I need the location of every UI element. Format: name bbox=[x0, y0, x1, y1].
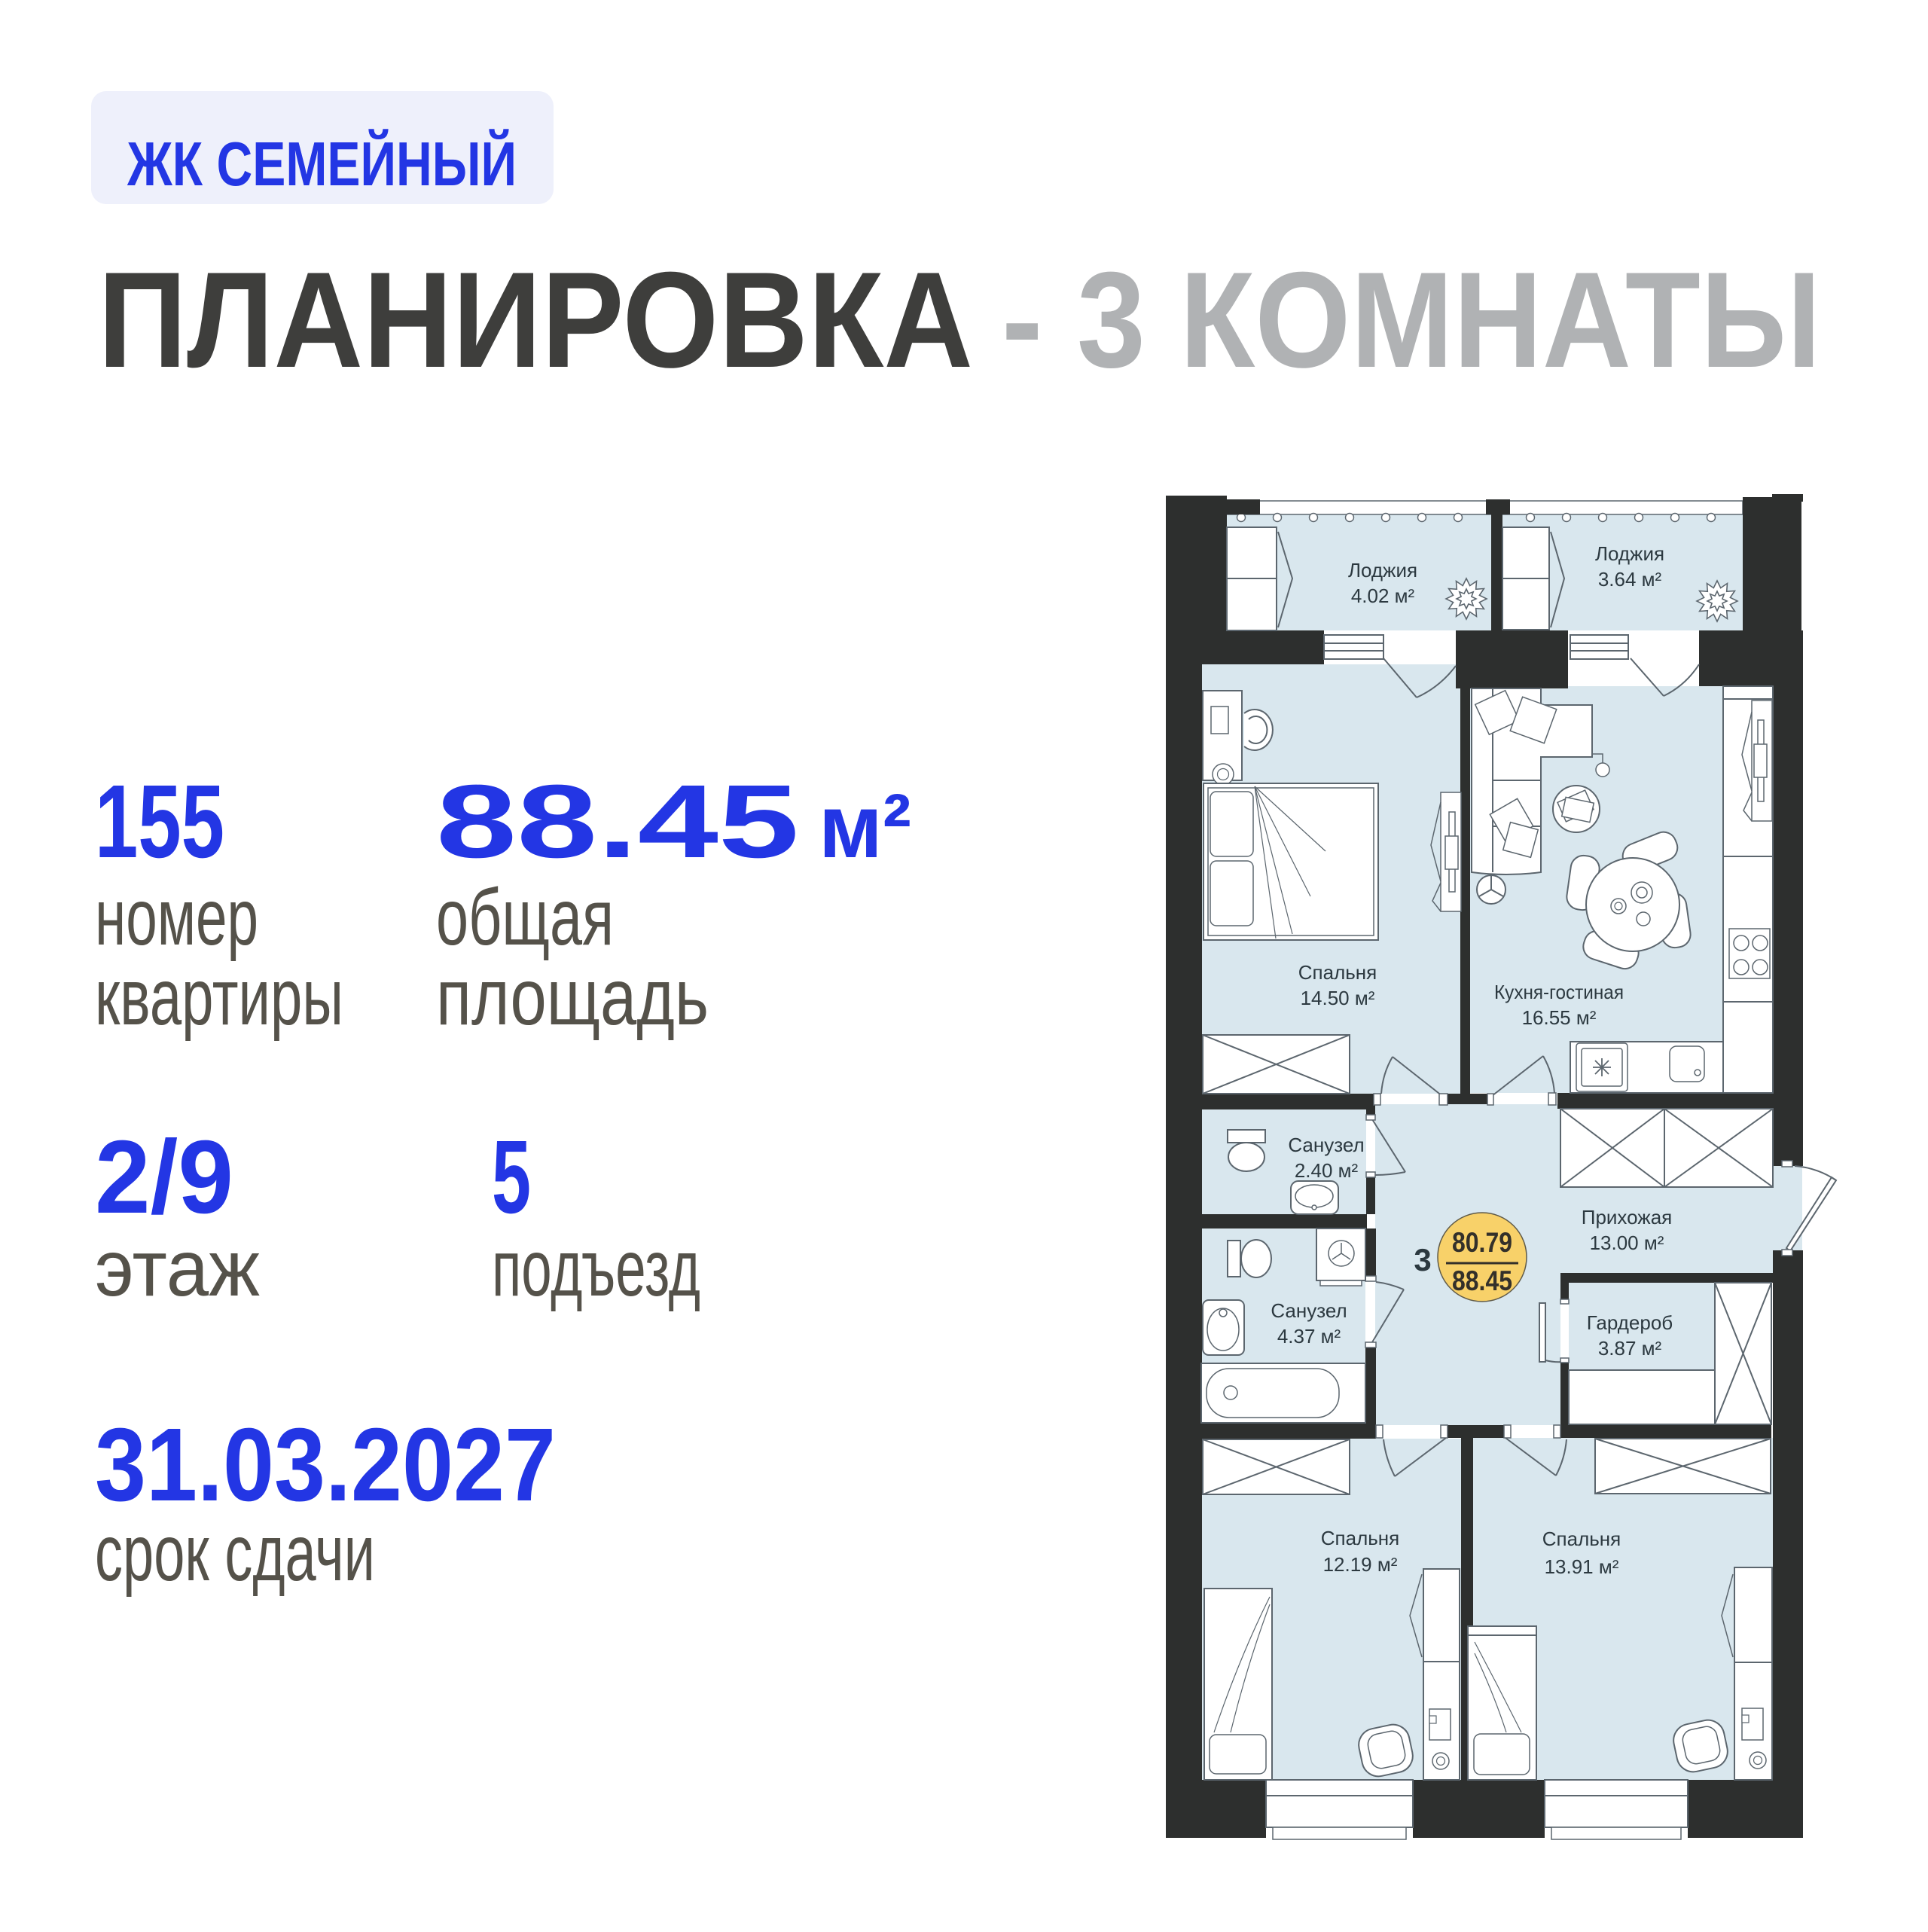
svg-text:общая: общая bbox=[436, 873, 614, 962]
svg-text:квартиры: квартиры bbox=[95, 953, 343, 1042]
svg-text:Спальня: Спальня bbox=[1321, 1527, 1399, 1549]
svg-text:Санузел: Санузел bbox=[1271, 1299, 1347, 1322]
svg-text:Лоджия: Лоджия bbox=[1348, 559, 1417, 581]
svg-text:3.87 м²: 3.87 м² bbox=[1598, 1337, 1662, 1360]
svg-text:подъезд: подъезд bbox=[492, 1224, 700, 1313]
svg-text:номер: номер bbox=[95, 873, 258, 962]
svg-text:16.55 м²: 16.55 м² bbox=[1522, 1006, 1597, 1029]
svg-text:80.79: 80.79 bbox=[1452, 1227, 1512, 1258]
svg-text:4.37 м²: 4.37 м² bbox=[1277, 1325, 1341, 1348]
svg-text:м²: м² bbox=[819, 776, 911, 877]
svg-text:площадь: площадь bbox=[436, 953, 709, 1042]
svg-text:13.00 м²: 13.00 м² bbox=[1590, 1232, 1664, 1254]
svg-text:Спальня: Спальня bbox=[1542, 1528, 1621, 1550]
svg-text:Гардероб: Гардероб bbox=[1587, 1311, 1673, 1334]
svg-text:ЖК СЕМЕЙНЫЙ: ЖК СЕМЕЙНЫЙ bbox=[127, 128, 517, 199]
svg-text:этаж: этаж bbox=[95, 1224, 260, 1313]
svg-text:4.02 м²: 4.02 м² bbox=[1351, 584, 1415, 607]
svg-text:Спальня: Спальня bbox=[1298, 961, 1377, 984]
svg-text:13.91 м²: 13.91 м² bbox=[1545, 1555, 1619, 1578]
svg-text:88.45: 88.45 bbox=[1452, 1265, 1512, 1296]
svg-text:2/9: 2/9 bbox=[95, 1119, 233, 1235]
svg-text:12.19 м²: 12.19 м² bbox=[1323, 1553, 1398, 1576]
svg-text:3.64 м²: 3.64 м² bbox=[1598, 568, 1662, 591]
svg-text:88.45: 88.45 bbox=[436, 764, 799, 880]
svg-text:- 3 КОМНАТЫ: - 3 КОМНАТЫ bbox=[1002, 244, 1821, 396]
svg-text:Прихожая: Прихожая bbox=[1582, 1206, 1672, 1228]
svg-text:Кухня-гостиная: Кухня-гостиная bbox=[1494, 981, 1624, 1003]
svg-text:ПЛАНИРОВКА: ПЛАНИРОВКА bbox=[98, 244, 973, 396]
svg-text:31.03.2027: 31.03.2027 bbox=[95, 1407, 556, 1523]
svg-text:5: 5 bbox=[492, 1119, 531, 1235]
svg-text:3: 3 bbox=[1414, 1242, 1431, 1277]
svg-text:2.40 м²: 2.40 м² bbox=[1295, 1159, 1359, 1182]
svg-text:14.50 м²: 14.50 м² bbox=[1301, 987, 1375, 1009]
svg-text:Санузел: Санузел bbox=[1288, 1134, 1364, 1156]
svg-text:155: 155 bbox=[95, 764, 224, 880]
svg-text:срок сдачи: срок сдачи bbox=[95, 1509, 375, 1598]
svg-text:Лоджия: Лоджия bbox=[1595, 542, 1664, 565]
